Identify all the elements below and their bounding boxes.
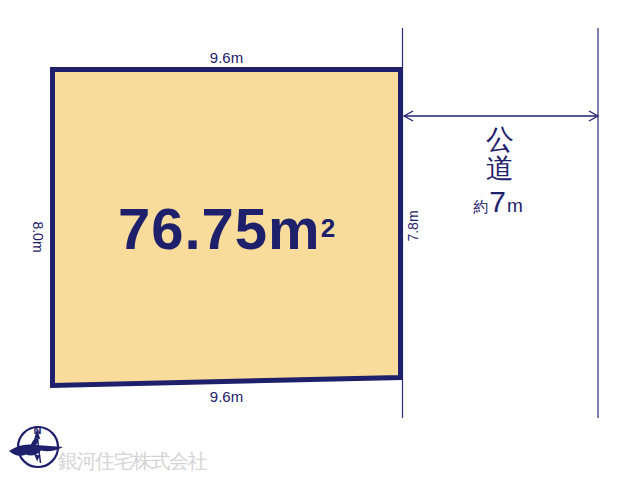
parcel-area-label: 76.75m2 <box>55 75 398 370</box>
road-width-unit: m <box>507 195 523 217</box>
road-width-prefix: 約 <box>473 198 488 217</box>
company-name: 銀河住宅株式会社 <box>58 448 206 475</box>
dimension-left: 8.0m <box>30 221 46 252</box>
dimension-top: 9.6m <box>50 49 403 66</box>
parcel-area-exponent: 2 <box>321 213 335 244</box>
parcel-area-unit: m <box>268 195 321 262</box>
road-name-label: 公 道 <box>486 125 514 183</box>
parcel-area-value: 76.75 <box>118 195 268 262</box>
road-width-value: 7 <box>489 185 506 219</box>
compass-north-label: N <box>34 424 42 436</box>
bird-silhouette-icon <box>9 438 63 455</box>
road-name-char-2: 道 <box>486 154 514 183</box>
road-name-char-1: 公 <box>486 125 514 154</box>
road-width-label: 約 7 m <box>473 185 523 219</box>
dimension-bottom: 9.6m <box>50 388 403 405</box>
dimension-right: 7.8m <box>405 210 421 241</box>
land-plot-diagram: 76.75m2 9.6m 9.6m 8.0m 7.8m 公 道 約 7 m N … <box>0 0 640 480</box>
road-width-arrow <box>404 111 598 121</box>
